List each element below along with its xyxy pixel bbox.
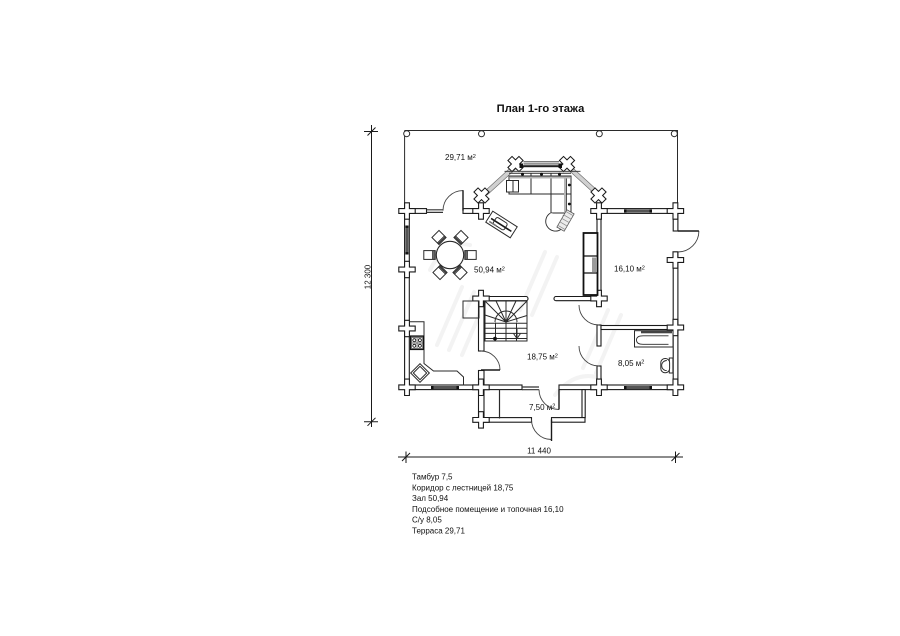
svg-text:Терраса 29,71: Терраса 29,71: [412, 527, 465, 536]
svg-text:8,05 м2: 8,05 м2: [618, 359, 644, 368]
svg-text:Коридор с лестницей 18,75: Коридор с лестницей 18,75: [412, 483, 514, 492]
svg-text:12 300: 12 300: [363, 264, 372, 289]
svg-text:18,75 м2: 18,75 м2: [527, 353, 558, 362]
svg-text:План 1-го этажа: План 1-го этажа: [497, 103, 585, 115]
svg-text:Тамбур 7,5: Тамбур 7,5: [412, 473, 453, 482]
svg-text:Зал 50,94: Зал 50,94: [412, 494, 449, 503]
svg-text:29,71 м2: 29,71 м2: [445, 153, 476, 162]
svg-text:С/у 8,05: С/у 8,05: [412, 516, 442, 525]
svg-text:50,94 м2: 50,94 м2: [474, 266, 505, 275]
svg-text:Подсобное помещение и топочная: Подсобное помещение и топочная 16,10: [412, 505, 564, 514]
svg-text:16,10 м2: 16,10 м2: [614, 265, 645, 274]
svg-text:7,50 м2: 7,50 м2: [529, 403, 555, 412]
svg-text:11 440: 11 440: [527, 447, 551, 456]
